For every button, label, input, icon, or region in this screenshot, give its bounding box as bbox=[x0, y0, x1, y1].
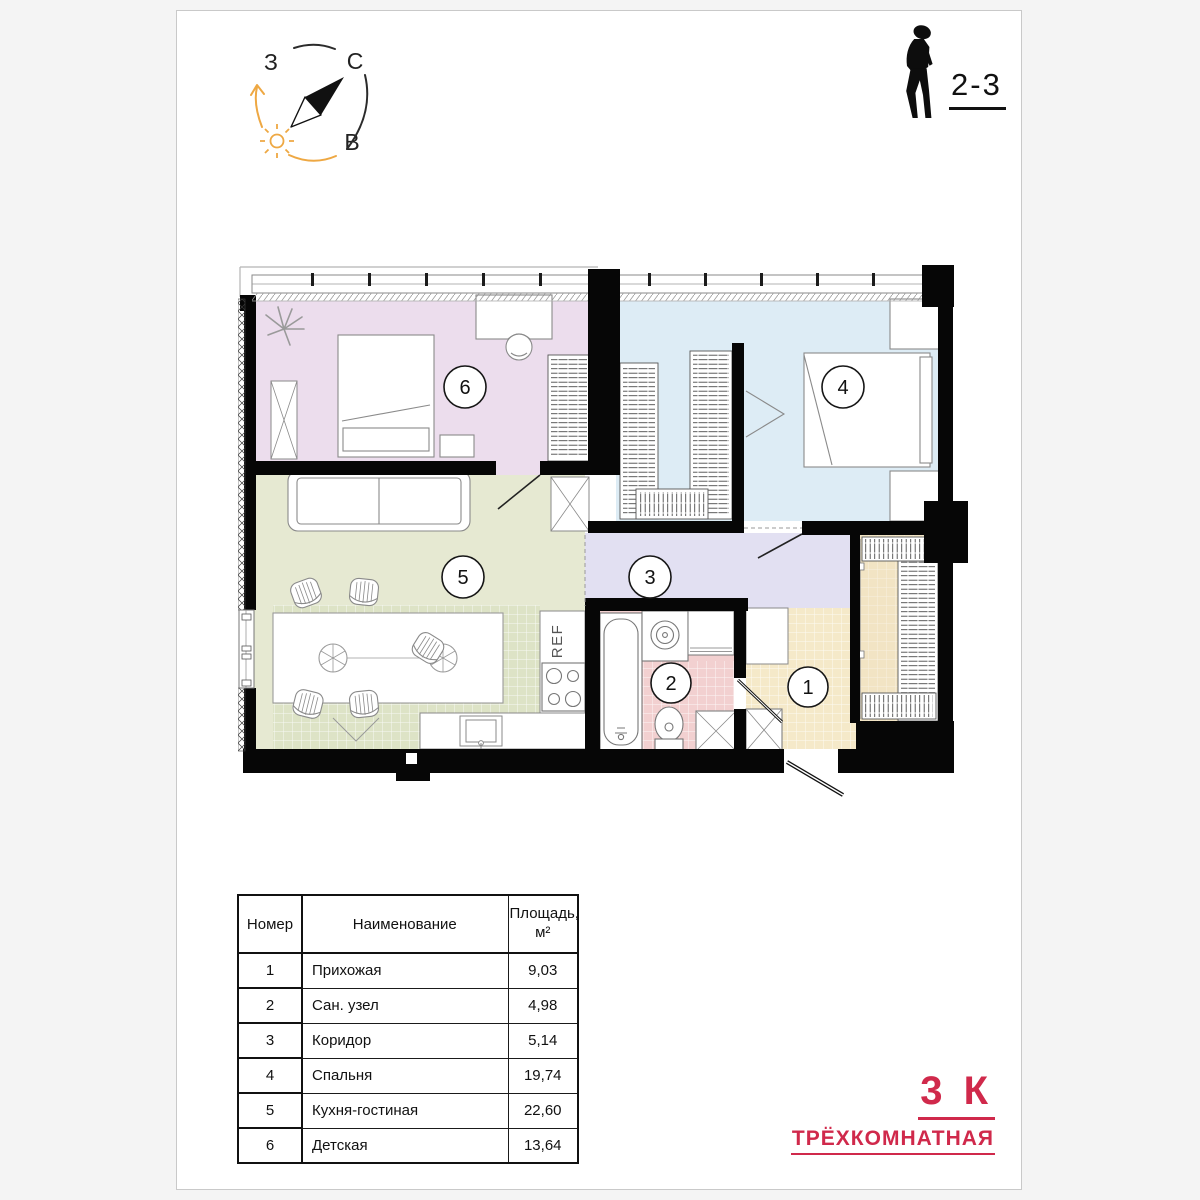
row-room-name: Прихожая bbox=[302, 953, 508, 988]
chair-icon bbox=[349, 578, 380, 607]
apartment-type-block: 3 К ТРЁХКОМНАТНАЯ bbox=[791, 1069, 995, 1155]
apartment-type-short: 3 К bbox=[918, 1069, 995, 1120]
table-row: 6 Детская 13,64 bbox=[238, 1128, 578, 1163]
window-band bbox=[252, 265, 954, 307]
areas-table-header-row: Номер Наименование Площадь, м² bbox=[238, 895, 578, 953]
row-number: 2 bbox=[238, 988, 302, 1023]
shaft-x-1 bbox=[696, 711, 736, 751]
exterior-hatch bbox=[238, 299, 245, 610]
header-area-line1: Площадь, bbox=[510, 905, 579, 922]
row-room-area: 9,03 bbox=[508, 953, 578, 988]
dining-table-icon bbox=[273, 613, 503, 703]
table-row: 3 Коридор 5,14 bbox=[238, 1023, 578, 1058]
floor-plan: REF bbox=[238, 263, 968, 808]
exterior-hatch bbox=[238, 688, 245, 751]
apartment-type-full: ТРЁХКОМНАТНАЯ bbox=[791, 1127, 995, 1155]
header-num: Номер bbox=[238, 895, 302, 953]
compass-arrow-head bbox=[251, 85, 264, 95]
person-icon bbox=[893, 23, 945, 121]
desk-icon bbox=[476, 295, 552, 339]
washing-machine-icon bbox=[642, 611, 688, 661]
row-room-area: 4,98 bbox=[508, 988, 578, 1023]
table-row: 1 Прихожая 9,03 bbox=[238, 953, 578, 988]
table-row: 4 Спальня 19,74 bbox=[238, 1058, 578, 1093]
sink-icon bbox=[460, 716, 502, 749]
bathtub-icon bbox=[600, 613, 642, 753]
row-room-name: Коридор bbox=[302, 1023, 508, 1058]
row-number: 3 bbox=[238, 1023, 302, 1058]
wardrobe-x-room6 bbox=[271, 381, 297, 459]
compass-arrow bbox=[256, 87, 262, 127]
room-3-fill bbox=[585, 533, 850, 608]
table-row: 2 Сан. узел 4,98 bbox=[238, 988, 578, 1023]
compass-north-label: С bbox=[347, 48, 364, 74]
compass-west-label: З bbox=[264, 49, 278, 75]
row-room-area: 5,14 bbox=[508, 1023, 578, 1058]
toilet-icon bbox=[655, 707, 683, 750]
header-name: Наименование bbox=[302, 895, 508, 953]
row-room-name: Детская bbox=[302, 1128, 508, 1163]
sofa-icon bbox=[288, 471, 470, 531]
sun-icon bbox=[260, 124, 294, 158]
door-leaf-entrance bbox=[787, 762, 843, 795]
compass-arc-top bbox=[294, 45, 335, 49]
room-badge-2: 2 bbox=[665, 673, 676, 695]
drawing-sheet: З С В 2-3 bbox=[176, 10, 1022, 1190]
compass-arc-bottom bbox=[289, 155, 336, 161]
room-badge-6: 6 bbox=[459, 377, 470, 399]
stove-icon bbox=[542, 663, 585, 711]
areas-table: Номер Наименование Площадь, м² 1 Прихожа… bbox=[237, 894, 579, 1164]
header-area-line2: м² bbox=[535, 924, 550, 941]
floor-range-label: 2-3 bbox=[949, 67, 1006, 110]
compass-rose: З С В bbox=[237, 25, 397, 183]
row-room-name: Сан. узел bbox=[302, 988, 508, 1023]
vanity-icon bbox=[688, 611, 734, 655]
desk-chair-icon bbox=[506, 334, 532, 360]
compass-needle bbox=[291, 77, 344, 127]
chair-icon bbox=[349, 690, 380, 719]
window-left bbox=[239, 610, 254, 688]
row-number: 4 bbox=[238, 1058, 302, 1093]
row-room-area: 22,60 bbox=[508, 1093, 578, 1128]
room-badge-1: 1 bbox=[802, 677, 813, 699]
row-number: 6 bbox=[238, 1128, 302, 1163]
row-room-name: Спальня bbox=[302, 1058, 508, 1093]
table-row: 5 Кухня-гостиная 22,60 bbox=[238, 1093, 578, 1128]
wardrobe-rack-room6 bbox=[548, 355, 590, 461]
cabinet-x-kitchen bbox=[551, 477, 589, 531]
row-number: 5 bbox=[238, 1093, 302, 1128]
row-room-area: 19,74 bbox=[508, 1058, 578, 1093]
row-room-name: Кухня-гостиная bbox=[302, 1093, 508, 1128]
header-area: Площадь, м² bbox=[508, 895, 578, 953]
room-badge-5: 5 bbox=[457, 567, 468, 589]
room-badge-4: 4 bbox=[837, 377, 848, 399]
row-room-area: 13,64 bbox=[508, 1128, 578, 1163]
fridge-label: REF bbox=[549, 624, 566, 659]
room-badge-3: 3 bbox=[644, 567, 655, 589]
wall-notch bbox=[406, 753, 417, 764]
hall-cabinet bbox=[746, 608, 788, 664]
row-number: 1 bbox=[238, 953, 302, 988]
